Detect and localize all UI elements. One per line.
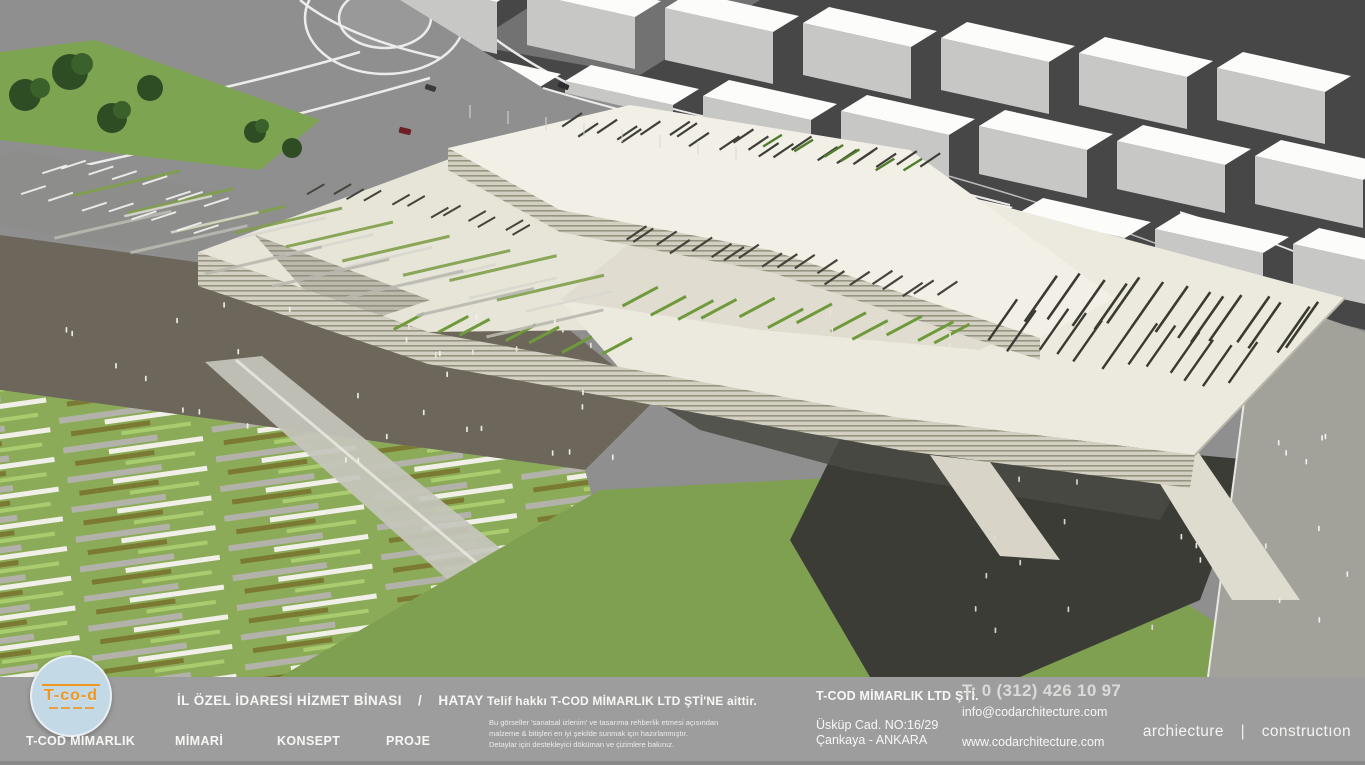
copyright-line: Telif hakkı T-COD MİMARLIK LTD ŞTİ'NE ai… xyxy=(487,694,757,708)
project-location: HATAY xyxy=(438,693,483,708)
company-name: T-COD MİMARLIK LTD ŞTİ. xyxy=(816,689,979,703)
tagline: archiecture | constructıon xyxy=(1143,723,1351,741)
tagline-divider: | xyxy=(1241,723,1245,740)
company-logo[interactable]: T-co-d xyxy=(30,655,112,737)
tagline-construction: constructıon xyxy=(1262,723,1351,740)
presentation-board: T-co-d T-COD MİMARLIK İL ÖZEL İDARESİ Hİ… xyxy=(0,0,1365,765)
phone-number: T: 0 (312) 426 10 97 xyxy=(962,681,1121,701)
menu-item-mimari[interactable]: MİMARİ xyxy=(175,734,223,748)
title-block-footer: T-co-d T-COD MİMARLIK İL ÖZEL İDARESİ Hİ… xyxy=(0,677,1365,765)
tagline-architecture: archiecture xyxy=(1143,723,1224,740)
menu-item-konsept[interactable]: KONSEPT xyxy=(277,734,340,748)
website-link[interactable]: www.codarchitecture.com xyxy=(962,735,1104,749)
project-title: İL ÖZEL İDARESİ HİZMET BİNASI / HATAY xyxy=(177,693,484,708)
company-brand: T-COD MİMARLIK xyxy=(26,734,135,748)
project-name: İL ÖZEL İDARESİ HİZMET BİNASI xyxy=(177,693,402,708)
architectural-render xyxy=(0,0,1365,677)
email-link[interactable]: info@codarchitecture.com xyxy=(962,705,1107,719)
company-address: Üsküp Cad. NO:16/29 Çankaya - ANKARA xyxy=(816,718,986,748)
copyright-disclaimer: Bu görseller 'sanatsal izlenim' ve tasar… xyxy=(489,718,754,751)
project-separator: / xyxy=(418,693,422,708)
menu-item-proje[interactable]: PROJE xyxy=(386,734,430,748)
logo-tagline-marks xyxy=(49,707,94,709)
logo-wordmark: T-co-d xyxy=(42,684,100,705)
